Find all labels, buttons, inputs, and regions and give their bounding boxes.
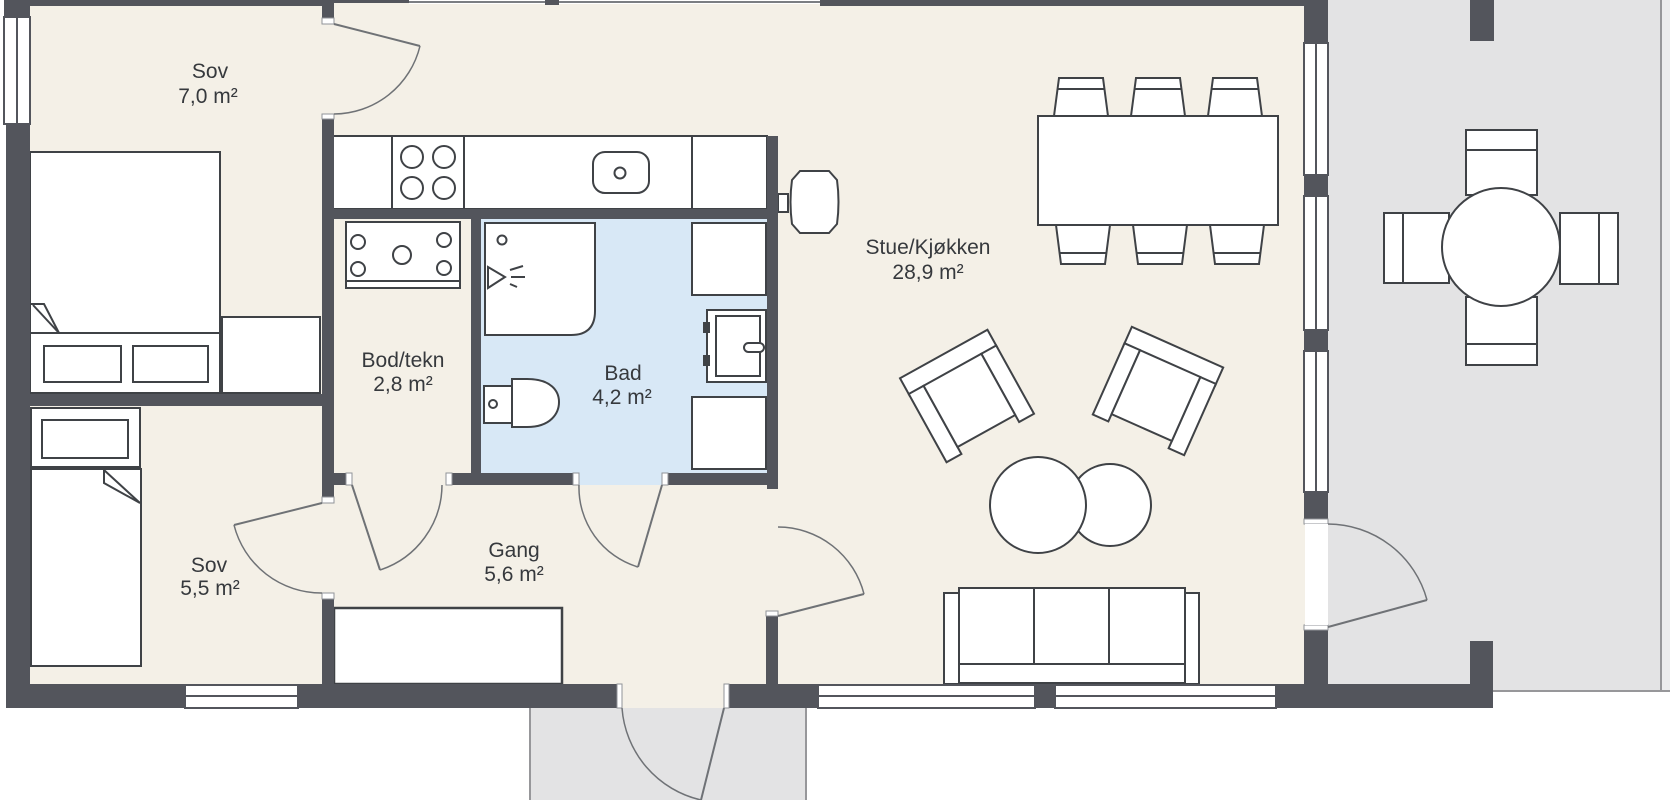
svg-text:2,8 m²: 2,8 m² (373, 373, 433, 396)
svg-text:Sov: Sov (191, 554, 228, 577)
svg-text:Stue/Kjøkken: Stue/Kjøkken (866, 236, 991, 259)
svg-text:28,9 m²: 28,9 m² (892, 261, 963, 284)
svg-text:7,0 m²: 7,0 m² (178, 85, 238, 108)
svg-text:5,6 m²: 5,6 m² (484, 563, 544, 586)
svg-text:Gang: Gang (488, 539, 539, 562)
svg-text:Sov: Sov (192, 60, 229, 83)
svg-text:5,5 m²: 5,5 m² (180, 577, 240, 600)
svg-text:Bod/tekn: Bod/tekn (362, 349, 445, 372)
svg-text:Bad: Bad (604, 362, 641, 385)
svg-text:4,2 m²: 4,2 m² (592, 386, 652, 409)
